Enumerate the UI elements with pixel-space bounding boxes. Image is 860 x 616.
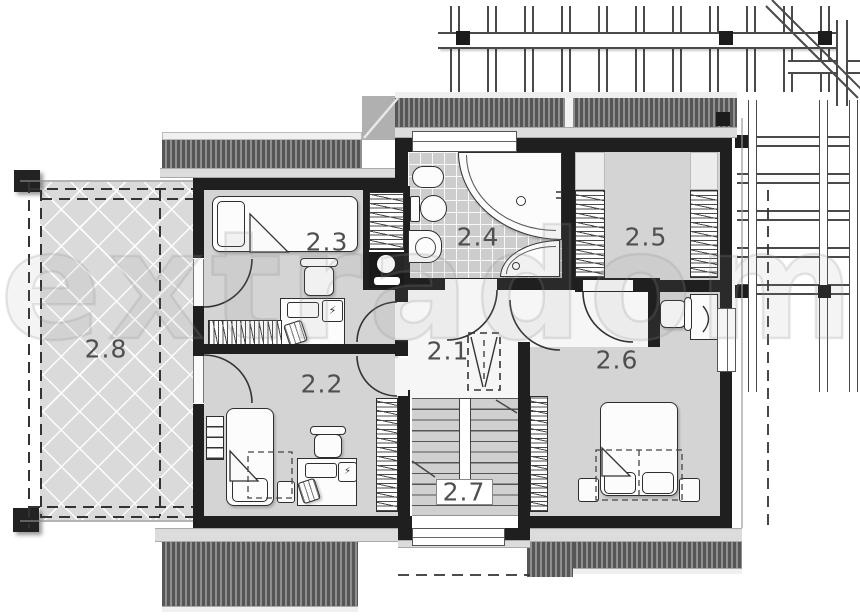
room-label-2-7: 2.7 [443,478,486,507]
eaves-band [160,168,395,178]
door-opening [583,280,633,291]
window [717,308,736,372]
pergola-post [735,285,748,298]
wall-segment [193,178,204,258]
roof-post [818,31,832,45]
sloped-ceiling-zone [575,152,605,190]
wall-segment [660,280,720,292]
room-label-2-8: 2.8 [85,335,128,364]
roof-post [456,31,470,45]
wall-segment [648,292,660,347]
roof-strip-bottom-left [162,542,358,606]
computer-monitor [287,302,319,318]
bathtub-drain [516,196,526,206]
computer-tower: ⚡ [338,462,357,482]
office-chair [304,266,334,296]
bidet [412,166,444,188]
wardrobe [376,398,398,512]
chair-back [300,258,338,267]
office-chair [660,300,686,328]
dormer-window [412,131,517,152]
office-chair [314,434,342,458]
roof-edge-band [162,606,358,612]
wall-segment [193,306,204,356]
wardrobe [575,190,605,278]
bed-pillow [642,472,674,494]
roof-strip-porch-side [527,542,573,577]
laundry-shelves [369,192,404,250]
sloped-ceiling-zone [690,152,718,190]
room-label-2-6: 2.6 [596,346,639,375]
computer-tower: ⚡ [322,300,343,322]
bed-pillow [604,472,636,494]
washing-machine-drum-icon [377,255,395,273]
roof-strip-bottom-right [573,542,742,568]
room-label-2-5: 2.5 [625,223,668,252]
toilet-tank [410,196,420,222]
roof-beam-pair [836,20,848,106]
nightstand [578,478,599,502]
wardrobe [208,320,282,345]
bed-pillow [217,201,245,247]
terrace-post [14,170,40,192]
roof-edge-band [573,568,742,574]
window [412,528,505,546]
pergola-beam [849,100,858,392]
door-opening [395,302,408,340]
roof-strip-gap [565,98,573,127]
pergola-beam [748,100,757,392]
roof-strip-top-left [162,140,362,168]
room-label-2-4: 2.4 [457,223,500,252]
wardrobe [530,396,548,512]
terrace-door-opening [193,259,204,306]
floor-plan-canvas: ⚡ ⚡ [0,0,860,616]
shelf-unit [206,416,224,460]
pergola-beam [819,100,828,392]
chair-back [310,426,346,435]
eaves-band [155,528,400,542]
roof-post [716,112,730,126]
wall-segment [395,290,408,302]
room-label-2-3: 2.3 [306,228,349,257]
bed-pillow [232,478,268,502]
door-opening [395,358,408,396]
terrace-door-opening [193,356,204,403]
door-opening [445,279,497,290]
chair-back [684,297,692,331]
washbasin-bowl [415,237,436,258]
roof-purlin-beam [438,32,840,49]
wall-segment [193,404,204,528]
desk [690,294,718,340]
nightstand [277,481,295,503]
wall-segment [204,344,395,354]
room-label-2-1: 2.1 [427,337,470,366]
toilet-bowl [420,195,447,222]
roof-rafters [450,6,836,92]
wall-segment [193,516,412,528]
wall-segment [395,340,408,356]
computer-monitor [305,463,337,478]
terrace-post [13,508,39,532]
eaves-band [530,528,742,542]
roof-edge-band [162,132,362,140]
washing-machine-drawer [374,277,400,285]
wardrobe [690,190,718,278]
roof-beam-pair [788,60,860,74]
nightstand [679,478,700,502]
pergola-post [818,285,831,298]
wall-segment [518,342,530,540]
shower-drain [512,262,520,270]
wall-segment [398,390,410,516]
roof-post [719,31,733,45]
wall-segment [518,516,732,528]
room-label-2-2: 2.2 [301,370,344,399]
wall-segment [562,152,575,280]
wall-segment [193,178,408,190]
